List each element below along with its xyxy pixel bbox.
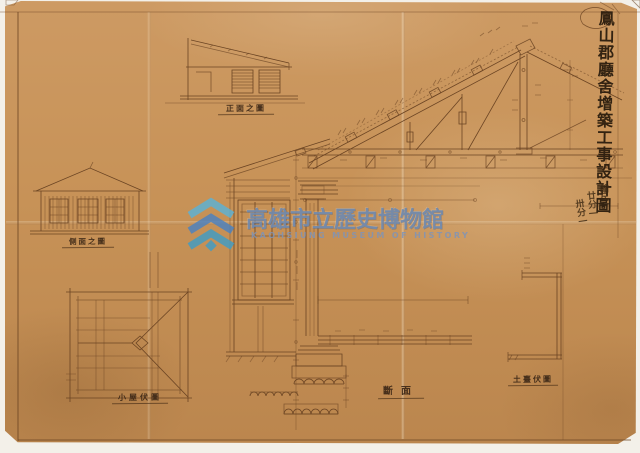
roof-framing-plan-drawing: [66, 252, 192, 402]
wall-section-drawing: [224, 139, 472, 430]
roof-truss-detail-drawing: [298, 39, 632, 209]
front-elevation-label: 正面之圖: [218, 104, 274, 115]
side-elevation-label: 側面之圖: [62, 238, 114, 249]
section-label: 斷面: [378, 386, 424, 399]
sill-plan-drawing: [508, 270, 562, 362]
roof-framing-plan-label: 小屋伏圖: [112, 393, 168, 404]
handwriting-marks: [338, 23, 587, 268]
scale-label: 縮尺: [599, 184, 608, 201]
sill-plan-label: 土臺伏圖: [508, 375, 558, 386]
side-elevation-drawing: [30, 162, 149, 234]
scale-value-1: 廿分一: [585, 191, 597, 219]
scanned-blueprint-page: { "sheet": { "title_vertical": "鳳山郡廳舍增築工…: [0, 0, 640, 453]
front-elevation-drawing: [165, 38, 305, 103]
